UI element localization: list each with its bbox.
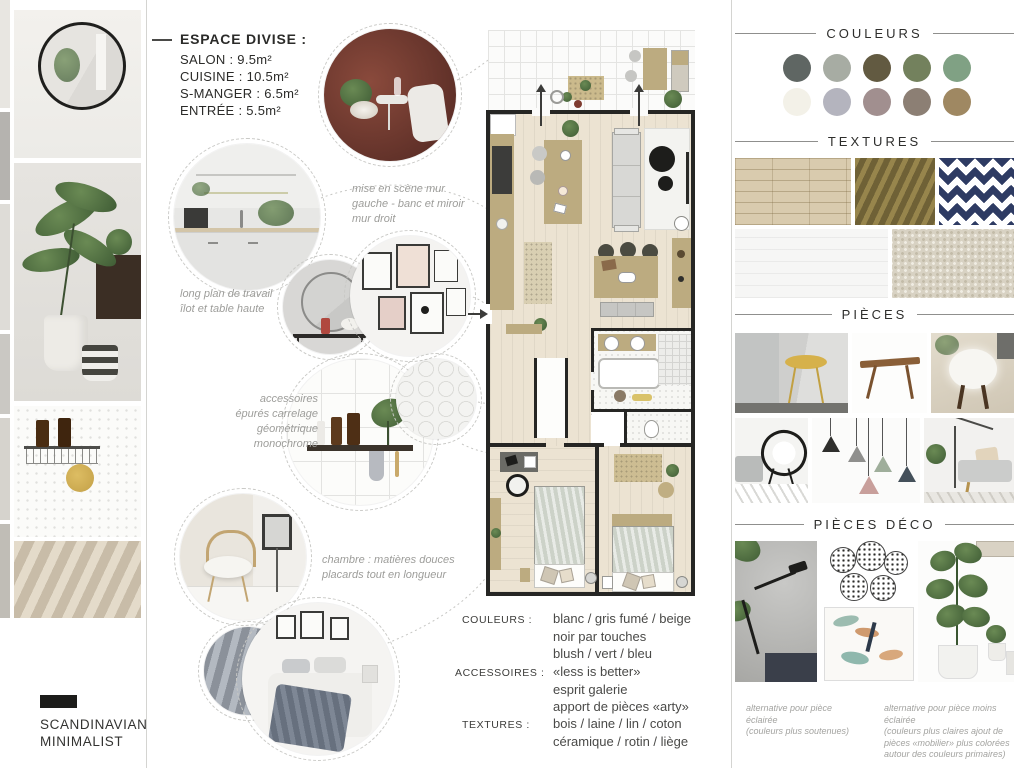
bed-cushion	[641, 574, 656, 589]
table-dish	[618, 272, 636, 283]
plan-appliance-circle	[674, 216, 689, 231]
section-header-pieces: PIÈCES	[735, 307, 1014, 322]
spec-label-textures: TEXTURES :	[462, 719, 530, 731]
striped-basket	[82, 345, 118, 381]
plan-plant	[491, 528, 501, 538]
section-title: COULEURS	[826, 26, 922, 41]
fiddle-leaf	[960, 605, 991, 630]
spec-line: blanc / gris fumé / beige	[553, 610, 691, 628]
palette-swatch	[783, 54, 811, 82]
plan-bed-left	[534, 486, 585, 566]
deco-task-lamp-photo	[735, 541, 817, 682]
plan-terrace	[488, 30, 695, 110]
plan-sink	[604, 336, 619, 351]
floor-plan	[486, 28, 699, 600]
header-dash	[152, 39, 172, 41]
piece-wood-dining-table-photo	[852, 333, 927, 413]
cabinet-handle	[248, 242, 258, 244]
caption-line: autour des couleurs primaires)	[884, 749, 1010, 761]
dark-sofa-corner	[997, 333, 1014, 359]
stool-leg	[957, 385, 965, 409]
annotation-line: îlot et table haute	[180, 302, 310, 317]
plan-stool	[532, 146, 547, 161]
annotation-line: épurés carrelage	[196, 407, 318, 422]
pendant-lamp-gray	[848, 446, 866, 462]
gray-knit-throw	[268, 683, 352, 752]
table-legs	[388, 104, 390, 130]
hanging-towel	[369, 451, 384, 481]
plan-sink-dot	[496, 218, 508, 230]
spec-label-accessoires: ACCESSOIRES :	[455, 667, 545, 679]
round-mirror-photo	[14, 10, 141, 158]
palette-swatch	[863, 88, 891, 116]
palette-swatch	[783, 88, 811, 116]
mirror-plant-reflection	[54, 48, 80, 82]
section-header-pieces-deco: PIÈCES DÉCO	[735, 517, 1014, 532]
wall-frame	[330, 617, 349, 640]
spec-line: céramique / rotin / liège	[553, 733, 688, 751]
art-frame	[362, 252, 392, 290]
caption-line: éclairée	[884, 715, 1010, 727]
spec-value-couleurs: blanc / gris fumé / beige noir par touch…	[553, 610, 691, 663]
plan-sink	[630, 336, 645, 351]
section-header-couleurs: COULEURS	[735, 26, 1014, 41]
bistro-table	[376, 95, 408, 104]
art-frame	[446, 288, 466, 316]
sofa-armrest	[614, 225, 639, 232]
plan-wall	[620, 443, 695, 447]
plan-side-table	[658, 176, 673, 191]
carafe	[394, 77, 401, 96]
piece-acapulco-chair-photo	[735, 418, 808, 503]
dotted-art-circle	[856, 541, 886, 571]
pillow	[282, 659, 310, 674]
plan-bath-stool	[614, 390, 626, 402]
annotation-accessoires: accessoires épurés carrelage géométrique…	[196, 392, 318, 452]
divider-left	[146, 0, 147, 768]
terrace-photo-bubble	[324, 29, 456, 161]
dark-stove	[184, 208, 208, 228]
spec-value-accessoires: «less is better» esprit galerie apport d…	[553, 663, 689, 716]
plan-coffee-station	[672, 238, 691, 308]
header-rule	[933, 33, 1014, 34]
plan-closet	[534, 358, 568, 438]
pendant-cord	[906, 418, 907, 466]
gold-table-leg	[788, 367, 797, 405]
terrace-lounge	[671, 50, 689, 92]
floor-lamp-stem	[276, 548, 278, 592]
chunky-knit-photo	[14, 541, 141, 618]
faucet	[240, 210, 243, 228]
page-title: ESPACE DIVISE :	[180, 31, 307, 47]
plant-stem	[956, 557, 958, 649]
caption-line: alternative pour pièce éclairée	[746, 703, 858, 726]
round-mirror	[38, 22, 126, 110]
plan-nightstand	[602, 576, 613, 589]
paint-smudge-teal	[840, 650, 870, 667]
leaf-stem	[387, 421, 389, 445]
texture-wood-planks	[735, 158, 851, 225]
area-item: SALON : 9.5m²	[180, 51, 299, 68]
sofa-armrest	[614, 128, 639, 135]
dark-floor	[735, 403, 848, 413]
paint-smudge-rust	[854, 626, 879, 638]
pendant-lamp-dark	[898, 466, 916, 482]
terrace-circle-decor	[550, 90, 564, 104]
edge-photo	[0, 418, 10, 520]
logo-bar	[40, 695, 77, 708]
annotation-line: gauche - banc et miroir	[352, 197, 492, 212]
palette-swatch	[943, 88, 971, 116]
coffee-station-item	[677, 250, 685, 258]
hanging-brush	[395, 451, 399, 477]
plan-wall	[624, 412, 627, 446]
spec-value-textures: bois / laine / lin / coton céramique / r…	[553, 715, 688, 750]
pendant-lamp-black	[822, 436, 840, 452]
palette-swatch	[943, 54, 971, 82]
paint-smudge-teal	[832, 613, 860, 628]
bed-cushion	[559, 568, 574, 583]
pendant-cord	[856, 418, 857, 446]
curtain-reflection	[96, 34, 106, 90]
annotation-plan-travail: long plan de travail îlot et table haute	[180, 287, 310, 317]
header-rule	[735, 524, 804, 525]
terrace-pouf	[625, 70, 637, 82]
header-rule	[917, 314, 1014, 315]
wall-frame	[276, 615, 296, 639]
dotted-art-circle	[884, 551, 908, 575]
nightstand	[362, 665, 378, 683]
annotation-line: long plan de travail	[180, 287, 310, 302]
plan-shower	[658, 334, 691, 385]
palette-swatch	[823, 88, 851, 116]
spec-line: bois / laine / lin / coton	[553, 715, 688, 733]
deco-artworks-photo	[822, 541, 914, 682]
annotation-mise-en-scene: mise en scène mur gauche - banc et miroi…	[352, 182, 492, 227]
corner-plant	[926, 444, 946, 464]
plan-headboard	[612, 514, 672, 526]
stool-leg	[981, 385, 989, 409]
door-arrow-up	[540, 90, 542, 126]
header-rule	[735, 141, 818, 142]
plan-fridge	[490, 114, 516, 136]
door-arrow-up	[638, 90, 640, 126]
header-rule	[735, 33, 816, 34]
edge-photo	[0, 334, 10, 414]
sheepskin-fluff	[949, 349, 997, 389]
caption-line: pièces «mobilier» plus colorées	[884, 738, 1010, 750]
plan-wall	[591, 409, 691, 412]
white-tube	[317, 421, 325, 445]
wire-basket	[26, 449, 98, 464]
plan-plant	[562, 120, 579, 137]
terrace-pouf	[629, 50, 641, 62]
small-pot	[988, 643, 1006, 661]
plan-speaker	[585, 572, 597, 584]
yellow-sponge	[66, 464, 94, 492]
plan-bedroom-rug	[614, 454, 662, 482]
door-arrow-head	[536, 84, 546, 92]
piece-gold-side-table-photo	[735, 333, 848, 413]
bathroom-shelf-photo	[14, 406, 141, 537]
annotation-line: géométrique	[196, 422, 318, 437]
plan-entry-rug	[524, 242, 552, 304]
piece-pendant-lamps-photo	[812, 418, 920, 503]
dotted-art-circle	[830, 547, 856, 573]
plan-coffee-table	[649, 146, 675, 172]
black-console	[293, 334, 367, 338]
island-bowl	[558, 186, 568, 196]
table-leg	[866, 365, 877, 399]
annotation-line: chambre : matières douces	[322, 553, 482, 568]
hex-tile-photo-bubble	[396, 359, 476, 439]
area-item: S-MANGER : 6.5m²	[180, 85, 299, 102]
bedroom-chair-photo-bubble	[180, 494, 306, 620]
amber-bottle	[58, 418, 71, 447]
terrace-table	[643, 48, 667, 90]
plan-stove	[492, 146, 512, 194]
white-chair	[406, 83, 449, 143]
diamond-rug	[735, 484, 808, 503]
caption-line: alternative pour pièce moins	[884, 703, 1010, 715]
plan-plant	[666, 464, 679, 477]
plan-wall	[591, 328, 691, 331]
open-shelf	[196, 174, 296, 176]
caption-line: (couleurs plus claires ajout de	[884, 726, 1010, 738]
palette-swatch	[863, 54, 891, 82]
texture-olive-knit	[855, 158, 935, 225]
table-top	[860, 357, 920, 368]
plan-entry-console	[506, 324, 542, 334]
small-plant	[986, 625, 1006, 643]
fiddle-leaf	[955, 571, 990, 601]
section-header-textures: TEXTURES	[735, 134, 1014, 149]
amber-bottle	[347, 413, 360, 445]
spec-line: blush / vert / bleu	[553, 645, 691, 663]
plan-speaker	[676, 576, 688, 588]
portrait-frame	[262, 514, 292, 550]
white-pot	[938, 645, 978, 679]
abstract-painting	[824, 607, 914, 681]
plan-bench	[600, 302, 654, 317]
gold-table-leg	[816, 367, 825, 405]
pendant-cord	[882, 418, 883, 456]
console-leg	[361, 338, 363, 352]
spec-line: apport de pièces «arty»	[553, 698, 689, 716]
small-pot	[1006, 651, 1014, 675]
area-list: SALON : 9.5m² CUISINE : 10.5m² S-MANGER …	[180, 51, 299, 119]
edge-photo	[0, 0, 10, 108]
plan-wall	[486, 443, 546, 447]
wall-frame	[300, 611, 324, 639]
fiddle-leaf	[925, 577, 956, 601]
plan-desk-chair	[506, 474, 529, 497]
spec-line: esprit galerie	[553, 681, 689, 699]
plan-toilet	[644, 420, 659, 438]
paint-smudge-rust	[878, 648, 903, 661]
palette-swatch	[903, 88, 931, 116]
terrace-big-plant	[664, 90, 682, 108]
spec-line: noir par touches	[553, 628, 691, 646]
pillow	[314, 657, 346, 673]
floor-lamp-stem	[954, 426, 956, 488]
pendant-lamp-blush	[859, 476, 879, 494]
background-plant	[935, 335, 959, 355]
logo-line-2: MINIMALIST	[40, 733, 147, 750]
logo-line-1: SCANDINAVIAN	[40, 716, 147, 733]
terrace-planter	[580, 80, 591, 91]
edge-photo	[0, 204, 10, 330]
texture-boucle-wool	[892, 229, 1014, 298]
header-rule	[931, 141, 1014, 142]
kitchen-herb	[192, 182, 210, 196]
texture-navy-chevron	[939, 158, 1014, 225]
area-item: CUISINE : 10.5m²	[180, 68, 299, 85]
table-leg	[905, 365, 914, 399]
amber-bottle	[36, 420, 49, 447]
dotted-art-circle	[870, 575, 896, 601]
annotation-line: mur droit	[352, 212, 492, 227]
kitchen-greenery	[258, 200, 294, 226]
gold-table-top	[785, 355, 827, 369]
plan-tv-line	[686, 152, 689, 204]
bed-photo-bubble	[242, 603, 394, 755]
art-frame	[378, 296, 406, 330]
caption-piece-moins-eclairee: alternative pour pièce moins éclairée (c…	[884, 703, 1010, 761]
header-rule	[945, 524, 1014, 525]
kitchen-photo-bubble	[174, 144, 320, 290]
annotation-line: placards tout en longueur	[322, 568, 482, 583]
gray-ottoman	[735, 456, 763, 482]
header-rule	[735, 314, 832, 315]
piece-chaise-lounge-photo	[924, 418, 1014, 503]
section-title: TEXTURES	[828, 134, 921, 149]
texture-white-planks	[735, 229, 888, 298]
open-shelf	[204, 192, 288, 194]
logo-text: SCANDINAVIAN MINIMALIST	[40, 716, 147, 750]
frame-dot	[421, 306, 429, 314]
berber-rug	[924, 492, 1014, 503]
banana-plant-photo	[14, 163, 141, 401]
entry-arrow-head	[480, 309, 488, 319]
console-leg	[297, 338, 299, 352]
coffee-station-item	[678, 276, 684, 282]
art-frame	[396, 244, 430, 288]
divider-right	[731, 0, 732, 768]
pendant-lamp-green	[874, 456, 892, 472]
pendant-cord	[830, 418, 831, 436]
island-bowl	[560, 150, 571, 161]
annotation-line: monochrome	[196, 437, 318, 452]
gray-chaise	[958, 460, 1012, 482]
pendant-cord	[868, 418, 869, 476]
dotted-art-circle	[840, 573, 868, 601]
plan-bathtub	[598, 358, 660, 389]
floor-lamp-arm	[955, 418, 994, 430]
plan-sofa	[612, 132, 641, 228]
terrace-pot	[574, 100, 582, 108]
sheepskin-seat	[204, 556, 252, 578]
white-flowers	[350, 101, 378, 119]
caption-piece-eclairee: alternative pour pièce éclairée (couleur…	[746, 703, 858, 738]
cabinet-handle	[208, 242, 218, 244]
door-arrow-head	[634, 84, 644, 92]
desk-paper	[524, 456, 536, 468]
plan-nightstand	[520, 568, 530, 582]
gray-sofa	[735, 333, 779, 413]
lamp-arm	[754, 571, 796, 590]
art-frame	[434, 250, 458, 282]
caption-line: (couleurs plus soutenues)	[746, 726, 858, 738]
spec-line: «less is better»	[553, 663, 689, 681]
lamp-head	[788, 560, 808, 574]
plan-pouf	[658, 482, 674, 498]
deco-fiddle-leaf-plant-photo	[918, 541, 1014, 682]
annotation-line: mise en scène mur	[352, 182, 492, 197]
edge-photo	[0, 112, 10, 200]
spec-label-couleurs: COULEURS :	[462, 614, 532, 626]
palette-swatch	[823, 54, 851, 82]
plan-bath-mat	[632, 394, 652, 401]
plan-wall	[591, 328, 594, 372]
moodboard-page: SCANDINAVIAN MINIMALIST ESPACE DIVISE : …	[0, 0, 1024, 768]
vase	[321, 318, 330, 334]
edge-photo	[0, 524, 10, 618]
annotation-chambre: chambre : matières douces placards tout …	[322, 553, 482, 583]
amber-bottle	[331, 417, 342, 445]
annotation-line: accessoires	[196, 392, 318, 407]
palette-swatch	[903, 54, 931, 82]
gallery-wall-photo-bubble	[350, 236, 470, 356]
area-item: ENTRÉE : 5.5m²	[180, 102, 299, 119]
section-title: PIÈCES	[842, 307, 908, 322]
plan-stool	[530, 170, 545, 185]
piece-sheepskin-stool-photo	[931, 333, 1014, 413]
plan-wall	[595, 447, 599, 592]
dark-sofa-corner	[765, 653, 817, 682]
section-title: PIÈCES DÉCO	[814, 517, 936, 532]
leaf-overlay	[735, 541, 765, 567]
